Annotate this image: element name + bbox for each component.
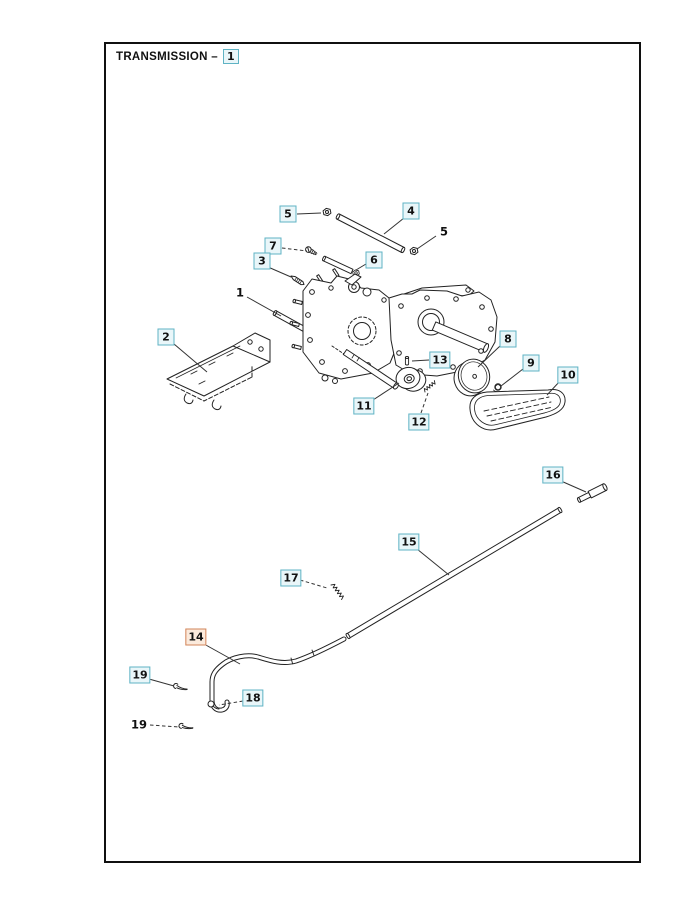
- callout-3[interactable]: 3: [254, 253, 271, 270]
- callout-11[interactable]: 11: [353, 398, 374, 415]
- screw-part-3: [290, 274, 305, 285]
- callout-18[interactable]: 18: [242, 690, 263, 707]
- leader-line-19: [150, 725, 179, 727]
- callout-17[interactable]: 17: [280, 570, 301, 587]
- leader-line-9: [501, 369, 523, 386]
- cotter-pin-part-19-upper: [173, 683, 188, 691]
- callout-9[interactable]: 9: [523, 355, 540, 372]
- mounting-bracket-part-2: [167, 333, 270, 410]
- leader-line-7: [282, 248, 307, 251]
- callout-15[interactable]: 15: [398, 534, 419, 551]
- leader-line-19: [149, 679, 174, 686]
- control-rod-part-15: [345, 507, 562, 639]
- callout-19[interactable]: 19: [129, 667, 150, 684]
- leader-line-5: [297, 213, 321, 214]
- leader-line-5: [417, 236, 436, 249]
- leader-line-6: [356, 264, 366, 270]
- rod-part-4: [336, 213, 406, 253]
- shift-rod-part-14: [212, 639, 344, 710]
- leader-line-17: [300, 580, 327, 588]
- callout-10[interactable]: 10: [557, 367, 578, 384]
- callout-2[interactable]: 2: [158, 329, 175, 346]
- leader-line-18: [219, 701, 243, 705]
- leader-line-3: [268, 267, 291, 277]
- leader-line-1: [247, 297, 281, 316]
- callout-16[interactable]: 16: [542, 467, 563, 484]
- leader-line-16: [561, 481, 586, 492]
- parts-diagram-page: TRANSMISSION – 1: [0, 0, 688, 900]
- ferrule-part-16: [576, 483, 608, 504]
- leader-line-12: [421, 393, 428, 413]
- callout-14[interactable]: 14: [185, 629, 206, 646]
- bolt-part-9: [494, 384, 502, 392]
- nut-part-5-right: [410, 247, 419, 256]
- callout-13[interactable]: 13: [429, 352, 450, 369]
- spring-part-17: [331, 583, 344, 600]
- rod-part-6: [322, 256, 360, 277]
- callout-5-plain: 5: [436, 223, 453, 240]
- nut-part-5-left: [323, 208, 332, 217]
- belt-part-10: [470, 390, 565, 430]
- callout-19-plain: 19: [129, 716, 149, 733]
- cotter-pin-part-19-lower: [179, 723, 193, 729]
- leader-line-4: [384, 218, 404, 234]
- callout-4[interactable]: 4: [403, 203, 420, 220]
- callout-8[interactable]: 8: [500, 331, 517, 348]
- callout-6[interactable]: 6: [366, 252, 383, 269]
- leader-line-11: [373, 383, 399, 400]
- callout-5[interactable]: 5: [280, 206, 297, 223]
- leader-line-15: [417, 549, 449, 575]
- callout-12[interactable]: 12: [408, 414, 429, 431]
- callout-1-plain: 1: [232, 284, 249, 301]
- leader-line-14: [204, 644, 240, 664]
- exploded-view-drawing: [0, 0, 688, 900]
